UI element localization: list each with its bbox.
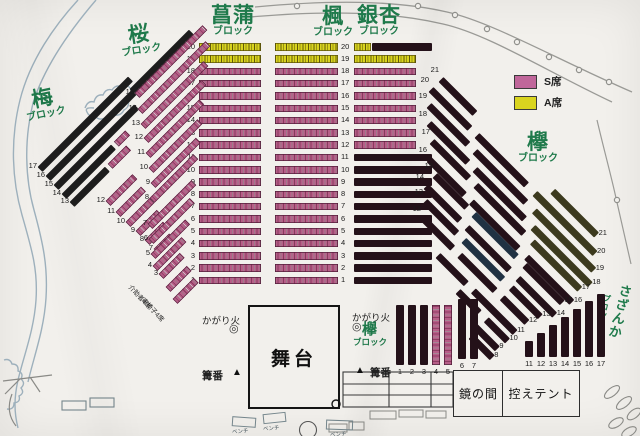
seat-row-kaede-4 bbox=[275, 240, 338, 248]
seat-row-kaede-10 bbox=[275, 166, 338, 174]
seat-segment-s bbox=[354, 117, 416, 125]
seat-segment-s bbox=[199, 228, 261, 236]
seat-col-keyaki-1 bbox=[396, 305, 404, 365]
seat-row-icho-20 bbox=[354, 43, 432, 51]
seat-row-icho-14 bbox=[354, 117, 416, 125]
seat-row-shobu-10 bbox=[199, 166, 261, 174]
seat-row-icho-4 bbox=[354, 240, 432, 248]
row-number-sakura: 9 bbox=[139, 178, 150, 186]
seat-row-kaede-17 bbox=[275, 80, 338, 88]
seat-segment-s bbox=[275, 105, 338, 113]
row-number-keyaki-end: 21 bbox=[599, 229, 610, 237]
seat-segment-s bbox=[199, 203, 261, 211]
legend-item-a: A席 bbox=[514, 95, 562, 110]
seat-row-kaede-5 bbox=[275, 228, 338, 236]
seat-row-kaede-6 bbox=[275, 215, 338, 223]
col-number-keyaki: 2 bbox=[406, 368, 418, 376]
row-number-sakura: 14 bbox=[126, 104, 137, 112]
col-number-keyaki: 7 bbox=[468, 362, 480, 370]
seat-segment-s bbox=[275, 191, 338, 199]
seat-row-shobu-17 bbox=[199, 80, 261, 88]
seat-segment-sold bbox=[372, 43, 432, 51]
seat-row-kaede-14 bbox=[275, 117, 338, 125]
row-number-ume: 10 bbox=[114, 217, 125, 225]
seat-row-shobu-11 bbox=[199, 154, 261, 162]
row-number-keyaki-end: 12 bbox=[529, 316, 540, 324]
seat-segment-s bbox=[275, 117, 338, 125]
row-number-keyaki-end: 17 bbox=[582, 283, 593, 291]
col-number-sazanka: 13 bbox=[547, 360, 559, 368]
row-number-keyaki-end: 13 bbox=[542, 310, 553, 318]
seat-col-sazanka-12 bbox=[537, 333, 545, 357]
seat-row-kaede-7 bbox=[275, 203, 338, 211]
seat-row-shobu-12 bbox=[199, 141, 261, 149]
mirror-room: 鏡の間 bbox=[453, 370, 503, 417]
col-number-keyaki: 4 bbox=[430, 368, 442, 376]
bench-rect bbox=[263, 412, 287, 424]
seat-row-icho-16 bbox=[354, 92, 416, 100]
left-structures bbox=[62, 398, 114, 410]
block-title-icho: 銀杏 ブロック bbox=[350, 5, 408, 37]
seat-segment-s bbox=[275, 240, 338, 248]
ground-circle bbox=[300, 422, 317, 436]
seat-row-shobu-2 bbox=[199, 264, 261, 272]
seat-row-icho-13 bbox=[354, 129, 416, 137]
seat-row-icho-19 bbox=[354, 55, 416, 63]
col-number-keyaki: 5 bbox=[442, 368, 454, 376]
seat-segment-sold bbox=[439, 77, 478, 116]
rocks bbox=[602, 383, 640, 436]
seat-row-icho-2 bbox=[354, 264, 432, 272]
col-number-sazanka: 12 bbox=[535, 360, 547, 368]
right-path-post bbox=[614, 197, 619, 202]
seat-segment-s bbox=[354, 92, 416, 100]
seat-segment-a bbox=[275, 43, 338, 51]
seat-row-shobu-16 bbox=[199, 92, 261, 100]
seat-segment-s bbox=[199, 166, 261, 174]
seat-row-shobu-1 bbox=[199, 277, 261, 285]
seat-row-icho-15 bbox=[354, 105, 416, 113]
row-number-sakura: 4 bbox=[141, 261, 152, 269]
row-number-keyaki-start: 15 bbox=[422, 162, 433, 170]
seat-row-icho-12 bbox=[354, 141, 416, 149]
seat-col-keyaki-4 bbox=[432, 305, 440, 365]
seat-segment-a bbox=[354, 43, 371, 51]
block-title-shobu: 菖蒲 ブロック bbox=[205, 5, 261, 37]
seat-segment-s bbox=[354, 129, 416, 137]
row-number-keyaki-end: 11 bbox=[517, 326, 528, 334]
keeper-icon-right: ▲ bbox=[355, 366, 365, 376]
seat-segment-s bbox=[199, 154, 261, 162]
seat-row-shobu-18 bbox=[199, 68, 261, 76]
col-number-sazanka: 11 bbox=[523, 360, 535, 368]
col-number-keyaki: 6 bbox=[456, 362, 468, 370]
seat-segment-sold bbox=[354, 277, 432, 285]
seat-segment-sold bbox=[354, 228, 432, 236]
row-number-keyaki-end: 10 bbox=[509, 334, 520, 342]
col-number-keyaki: 3 bbox=[418, 368, 430, 376]
seat-segment-a bbox=[354, 55, 416, 63]
seat-row-kaede-9 bbox=[275, 178, 338, 186]
seat-segment-s bbox=[275, 68, 338, 76]
seat-segment-s bbox=[199, 252, 261, 260]
keeper-icon-left: ▲ bbox=[232, 368, 242, 378]
seat-row-icho-5 bbox=[354, 228, 432, 236]
bench-label: ベンチ bbox=[263, 423, 280, 432]
seat-segment-s bbox=[275, 203, 338, 211]
block-title-sakura: 桜 ブロック bbox=[118, 21, 163, 59]
row-number-sakura: 11 bbox=[134, 148, 145, 156]
seat-row-shobu-7 bbox=[199, 203, 261, 211]
seat-segment-s bbox=[275, 141, 338, 149]
seat-segment-s bbox=[199, 240, 261, 248]
row-number-sakura: 6 bbox=[137, 234, 148, 242]
s-seat-swatch bbox=[514, 75, 537, 89]
seat-row-icho-17 bbox=[354, 80, 416, 88]
seat-segment-s bbox=[354, 68, 416, 76]
seat-col-sazanka-17 bbox=[597, 294, 605, 357]
seat-segment-s bbox=[275, 264, 338, 272]
seat-segment-s bbox=[199, 215, 261, 223]
waiting-tent: 控えテント bbox=[502, 370, 580, 417]
seat-row-icho-3 bbox=[354, 252, 432, 260]
row-number-sakura: 10 bbox=[137, 163, 148, 171]
col-number-sazanka: 17 bbox=[595, 360, 607, 368]
row-number-sakura: 5 bbox=[139, 249, 150, 257]
row-number-ume: 11 bbox=[104, 207, 115, 215]
row-number-keyaki-end: 15 bbox=[564, 296, 575, 304]
seat-row-shobu-9 bbox=[199, 178, 261, 186]
keeper-label-right: 篝番 bbox=[370, 365, 391, 380]
row-number-sakura: 8 bbox=[138, 193, 149, 201]
col-number-sazanka: 15 bbox=[571, 360, 583, 368]
bonfire-icon-right: ◎ bbox=[352, 322, 362, 333]
seat-segment-s bbox=[354, 80, 416, 88]
seat-segment-s bbox=[199, 129, 261, 137]
seat-segment-s bbox=[199, 264, 261, 272]
seat-segment-s bbox=[114, 130, 130, 146]
right-path bbox=[597, 120, 631, 264]
seat-row-icho-11 bbox=[354, 154, 432, 162]
seat-row-kaede-20 bbox=[275, 43, 338, 51]
row-number-keyaki-end: 19 bbox=[596, 264, 607, 272]
seat-col-sazanka-13 bbox=[549, 325, 557, 357]
bonfire-icon-left: ◎ bbox=[229, 324, 239, 335]
seat-segment-s bbox=[199, 277, 261, 285]
seat-row-icho-1 bbox=[354, 277, 432, 285]
seat-segment-s bbox=[275, 80, 338, 88]
seat-row-kaede-1 bbox=[275, 277, 338, 285]
row-number-keyaki-start: 12 bbox=[410, 205, 421, 213]
row-number-keyaki-start: 14 bbox=[413, 173, 424, 181]
seat-row-kaede-16 bbox=[275, 92, 338, 100]
row-number-keyaki-end: 20 bbox=[597, 247, 608, 255]
seat-col-sazanka-15 bbox=[573, 309, 581, 357]
seat-col-sazanka-16 bbox=[585, 301, 593, 357]
col-number-sazanka: 16 bbox=[583, 360, 595, 368]
row-number-sakura: 12 bbox=[132, 133, 143, 141]
seat-row-kaede-11 bbox=[275, 154, 338, 162]
seat-col-keyaki-5 bbox=[444, 305, 452, 365]
seat-col-keyaki-7 bbox=[470, 299, 478, 359]
keeper-label-left: 篝番 bbox=[202, 368, 223, 383]
row-number-ume: 14 bbox=[50, 189, 61, 197]
seat-segment-s bbox=[199, 141, 261, 149]
seat-row-shobu-3 bbox=[199, 252, 261, 260]
seat-segment-sold bbox=[354, 264, 432, 272]
row-number-ume: 15 bbox=[42, 180, 53, 188]
bench-label: ベンチ bbox=[232, 426, 249, 435]
row-number-keyaki-start: 21 bbox=[428, 66, 439, 74]
col-number-keyaki: 1 bbox=[394, 368, 406, 376]
bench-rect bbox=[326, 420, 353, 431]
row-number-sakura: 3 bbox=[147, 269, 158, 277]
stage: 舞台 bbox=[248, 305, 340, 409]
seat-segment-s bbox=[199, 92, 261, 100]
seat-row-shobu-19 bbox=[199, 55, 261, 63]
seat-row-kaede-19 bbox=[275, 55, 338, 63]
seat-row-shobu-13 bbox=[199, 129, 261, 137]
seat-segment-s bbox=[199, 117, 261, 125]
seat-segment-s bbox=[354, 105, 416, 113]
seat-segment-s bbox=[275, 178, 338, 186]
row-number-sakura: 15 bbox=[123, 88, 134, 96]
seat-segment-s bbox=[199, 68, 261, 76]
row-number-keyaki-end: 8 bbox=[494, 351, 505, 359]
seat-row-shobu-15 bbox=[199, 105, 261, 113]
seat-segment-s bbox=[275, 228, 338, 236]
row-number-keyaki-end: 9 bbox=[499, 342, 510, 350]
seat-row-icho-18 bbox=[354, 68, 416, 76]
seat-col-sazanka-11 bbox=[525, 341, 533, 357]
row-number-ume: 12 bbox=[94, 196, 105, 204]
seat-segment-s bbox=[275, 252, 338, 260]
seat-segment-s bbox=[275, 215, 338, 223]
seat-row-kaede-2 bbox=[275, 264, 338, 272]
seat-segment-s bbox=[275, 166, 338, 174]
row-number-keyaki-start: 19 bbox=[416, 92, 427, 100]
seat-segment-s bbox=[275, 129, 338, 137]
seat-row-shobu-4 bbox=[199, 240, 261, 248]
seat-segment-a bbox=[199, 55, 261, 63]
seat-segment-s bbox=[275, 154, 338, 162]
seat-segment-s bbox=[275, 92, 338, 100]
special-seat-label: 車椅子4席 bbox=[140, 295, 168, 323]
row-number-keyaki-end: 18 bbox=[592, 278, 603, 286]
seat-row-kaede-12 bbox=[275, 141, 338, 149]
row-number-keyaki-start: 17 bbox=[419, 128, 430, 136]
a-seat-swatch bbox=[514, 96, 537, 110]
seat-segment-s bbox=[199, 191, 261, 199]
seat-row-kaede-13 bbox=[275, 129, 338, 137]
seat-segment-a bbox=[275, 55, 338, 63]
row-number-keyaki-start: 18 bbox=[416, 110, 427, 118]
walkway-grid bbox=[343, 372, 453, 407]
col-number-sazanka: 14 bbox=[559, 360, 571, 368]
row-number-ume: 13 bbox=[58, 197, 69, 205]
seat-row-kaede-15 bbox=[275, 105, 338, 113]
seat-segment-s bbox=[199, 80, 261, 88]
row-number-sakura: 13 bbox=[129, 119, 140, 127]
row-number-keyaki-start: 16 bbox=[416, 146, 427, 154]
sketch-lines bbox=[3, 375, 52, 426]
seat-row-shobu-6 bbox=[199, 215, 261, 223]
seat-segment-sold bbox=[354, 252, 432, 260]
seat-row-shobu-8 bbox=[199, 191, 261, 199]
seat-col-keyaki-6 bbox=[458, 299, 466, 359]
seat-segment-sold bbox=[354, 240, 432, 248]
bench-label: ベンチ bbox=[330, 429, 347, 436]
seat-row-kaede-3 bbox=[275, 252, 338, 260]
seat-row-shobu-5 bbox=[199, 228, 261, 236]
row-number-ume: 17 bbox=[26, 162, 37, 170]
seat-row-kaede-18 bbox=[275, 68, 338, 76]
seat-row-shobu-14 bbox=[199, 117, 261, 125]
row-number-keyaki-end: 16 bbox=[574, 296, 585, 304]
seat-col-keyaki-3 bbox=[420, 305, 428, 365]
seating-map: 梅 ブロック 桜 ブロック 菖蒲 ブロック 楓 ブロック 銀杏 ブロック 欅 ブ… bbox=[0, 0, 640, 436]
block-title-ume: 梅 ブロック bbox=[21, 84, 67, 124]
seat-segment-sold bbox=[354, 154, 432, 162]
row-number-sakura: 7 bbox=[136, 219, 147, 227]
seat-col-sazanka-14 bbox=[561, 317, 569, 357]
legend: S席 A席 bbox=[514, 74, 562, 116]
seat-segment-s bbox=[199, 105, 261, 113]
seat-col-keyaki-2 bbox=[408, 305, 416, 365]
row-number-ume: 16 bbox=[34, 171, 45, 179]
seat-segment-s bbox=[354, 141, 416, 149]
legend-item-s: S席 bbox=[514, 74, 562, 89]
row-number-ume: 9 bbox=[124, 226, 135, 234]
seat-segment-s bbox=[199, 178, 261, 186]
row-number-keyaki-start: 20 bbox=[418, 76, 429, 84]
seat-segment-s bbox=[275, 277, 338, 285]
row-number-keyaki-start: 13 bbox=[412, 188, 423, 196]
seat-row-kaede-8 bbox=[275, 191, 338, 199]
row-number-keyaki-end: 14 bbox=[557, 309, 568, 317]
